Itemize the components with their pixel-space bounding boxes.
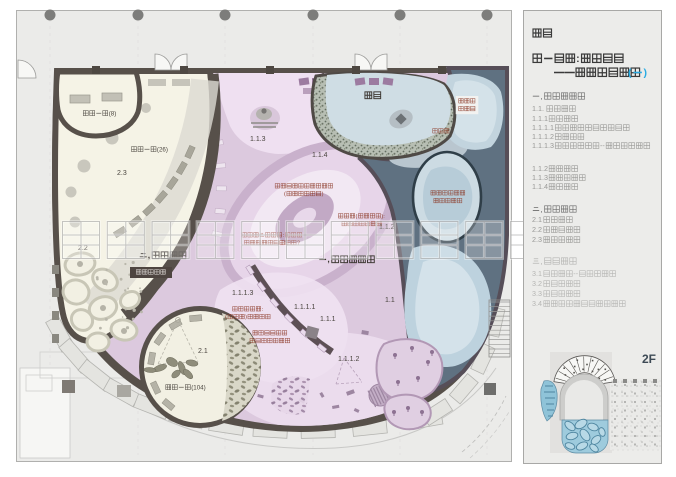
svg-text:1.1.2: 1.1.2 — [532, 164, 548, 173]
svg-text:1.1.1.1: 1.1.1.1 — [532, 123, 554, 132]
svg-text::: : — [576, 53, 580, 65]
svg-text:1.1.1: 1.1.1 — [320, 316, 336, 323]
svg-text:(26): (26) — [157, 146, 168, 153]
svg-text:(104): (104) — [191, 384, 205, 391]
svg-text:2.2: 2.2 — [532, 225, 542, 234]
svg-text:(8): (8) — [109, 110, 117, 117]
svg-text:1.1.1: 1.1.1 — [532, 114, 548, 123]
svg-text:,: , — [540, 257, 542, 266]
svg-text:,: , — [540, 92, 542, 101]
svg-text:1.1.: 1.1. — [532, 104, 544, 113]
svg-text:3.1: 3.1 — [532, 269, 542, 278]
svg-text:2.1: 2.1 — [198, 348, 208, 355]
svg-text:(: ( — [628, 67, 632, 79]
svg-text:,: , — [148, 250, 150, 260]
svg-text:3.4: 3.4 — [532, 299, 542, 308]
svg-text:1.1.1.2: 1.1.1.2 — [338, 356, 360, 363]
svg-text:):: ): — [381, 214, 385, 220]
svg-text:(: ( — [284, 192, 286, 198]
svg-text:,: , — [327, 254, 329, 264]
svg-text:1.1.1.3: 1.1.1.3 — [532, 141, 554, 150]
svg-text:1.1: 1.1 — [385, 297, 395, 304]
svg-text:2.1: 2.1 — [532, 215, 542, 224]
svg-text:): ) — [245, 315, 247, 321]
svg-text:1.1.1.2: 1.1.1.2 — [532, 132, 554, 141]
svg-text:1.1.3: 1.1.3 — [250, 136, 266, 143]
svg-text:3.2: 3.2 — [532, 279, 542, 288]
svg-text:(: ( — [356, 214, 358, 220]
svg-text:1.1.4: 1.1.4 — [532, 182, 548, 191]
svg-text:1.1.1.3: 1.1.1.3 — [232, 290, 254, 297]
svg-text:2.3: 2.3 — [532, 235, 542, 244]
svg-text:2.3: 2.3 — [117, 170, 127, 177]
svg-text:,: , — [540, 205, 542, 214]
svg-text:1.1.4: 1.1.4 — [312, 152, 328, 159]
svg-text:(: ( — [225, 315, 227, 321]
svg-text:3.3: 3.3 — [532, 289, 542, 298]
svg-text:): ) — [644, 67, 648, 79]
svg-text:--: -- — [573, 269, 578, 278]
svg-text:--: -- — [600, 141, 605, 150]
svg-text:2F: 2F — [642, 352, 656, 366]
svg-text:): ) — [322, 192, 324, 198]
svg-text:1.1.3: 1.1.3 — [532, 173, 548, 182]
svg-text:1.1.1.1: 1.1.1.1 — [294, 304, 316, 311]
